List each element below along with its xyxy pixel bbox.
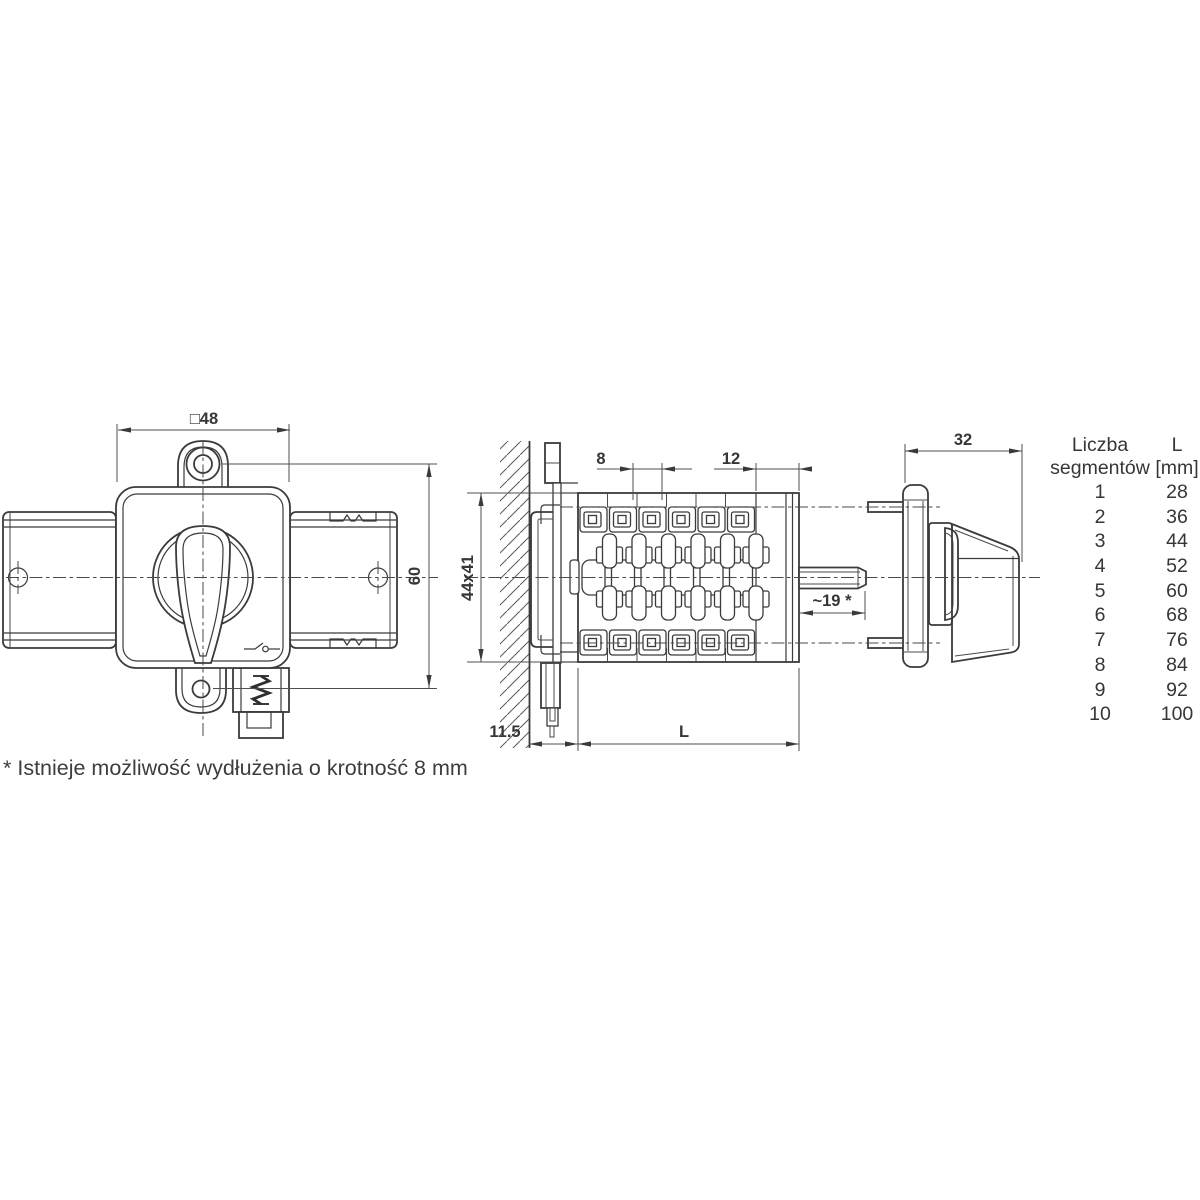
clip-foot [239,712,283,738]
footnote: * Istnieje możliwość wydłużenia o krotno… [3,756,468,781]
front-view [3,441,397,738]
dim-front-section: 12 [714,450,812,491]
panel-wall-hatch [500,441,529,748]
profile-view [868,485,1019,667]
technical-drawing: □48 60 8 12 [0,0,1200,1200]
table-cell-length: 44 [1136,529,1200,554]
din-rail-profile [531,512,553,647]
drive-shaft [799,568,866,589]
dim-label-front-width: □48 [190,410,218,428]
knob-profile [929,523,1019,662]
dim-label-length: L [679,723,689,741]
table-cell-length: 100 [1136,702,1200,727]
side-view [500,441,866,748]
knob-skirt [952,524,1019,662]
clip-foot [547,708,558,726]
dim-length: L [578,668,799,751]
clip-housing [541,663,560,708]
din-clip [233,668,289,738]
dim-label-knob-depth: 32 [954,431,972,449]
mounting-tab-bottom [176,667,226,713]
table-cell-length: 36 [1136,505,1200,530]
table-header-length-line2: [mm] [1136,457,1200,480]
table-column-length: L [mm] 28 36 44 52 60 68 76 84 92 100 [1136,434,1200,727]
technical-drawing-page: □48 60 8 12 [0,0,1200,1200]
table-cell-length: 60 [1136,579,1200,604]
dim-label-shaft-length: ~19 * [813,592,853,610]
dim-label-front-height: 60 [406,567,424,585]
dim-label-front-section: 12 [722,450,740,468]
table-cell-length: 84 [1136,653,1200,678]
table-cell-length: 76 [1136,628,1200,653]
table-cell-length: 92 [1136,678,1200,703]
table-header-length-line1: L [1136,434,1200,457]
table-cell-length: 52 [1136,554,1200,579]
dim-label-segment-pitch: 8 [596,450,605,468]
dim-label-panel-offset: 11.5 [489,723,520,741]
table-cell-length: 28 [1136,480,1200,505]
front-flange [903,485,928,667]
table-cell-length: 68 [1136,603,1200,628]
dim-label-body-size: 44x41 [459,555,477,601]
dim-shaft-length: ~19 * [800,591,865,620]
